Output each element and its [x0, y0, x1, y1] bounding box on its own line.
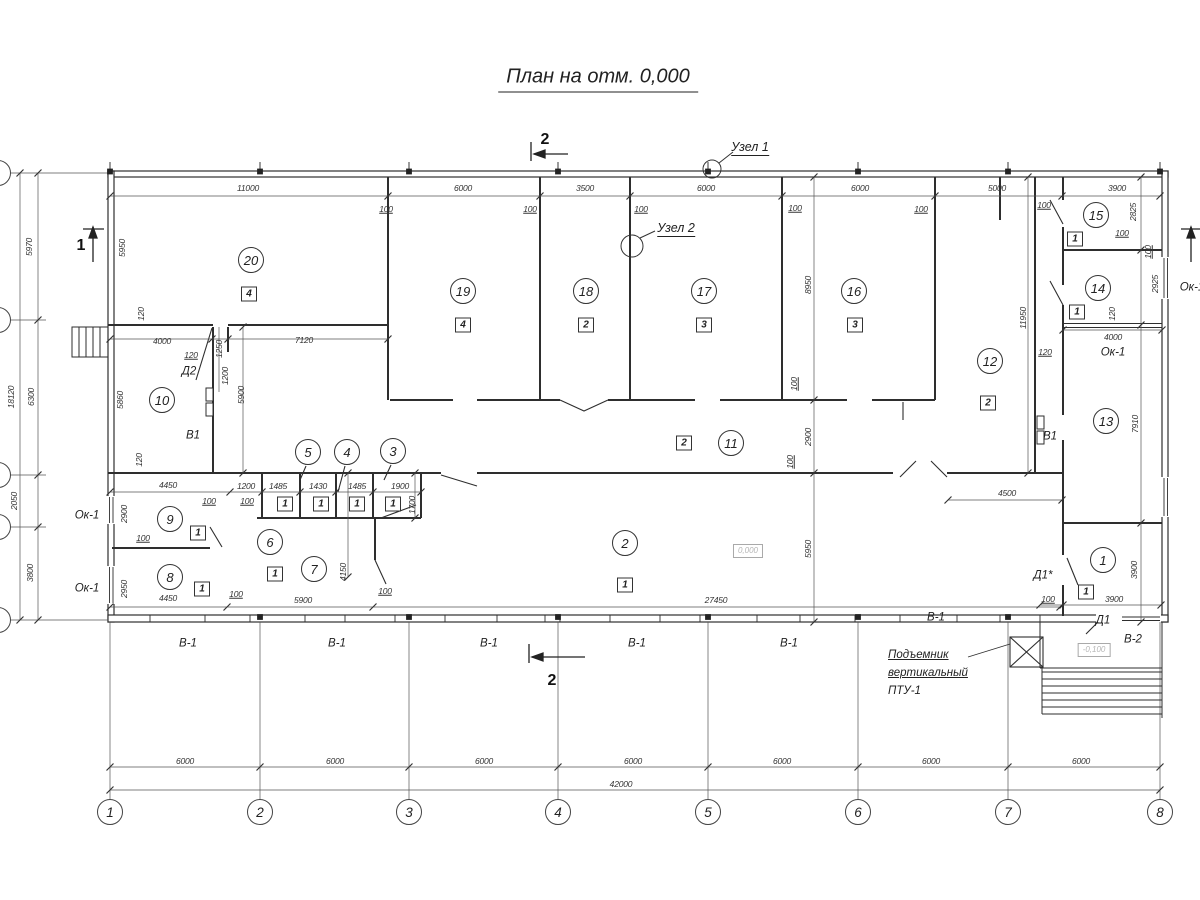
- lift-note-line1: Подъемник: [888, 646, 968, 664]
- plan-label: Ок-1: [75, 510, 100, 522]
- dimension-label: 4000: [1104, 333, 1122, 342]
- room-number-bubble-19: 19: [450, 278, 476, 304]
- dimension-label: 120: [1108, 307, 1117, 321]
- dimension-label: 100: [1041, 595, 1055, 604]
- axis-bubble-3: 3: [396, 799, 422, 825]
- dimension-label: 1485: [269, 482, 287, 491]
- dimension-label: 100: [229, 590, 243, 599]
- dimension-label: 100: [1144, 245, 1153, 259]
- dimension-label: 6000: [475, 757, 493, 766]
- dimension-label: 6000: [176, 757, 194, 766]
- dimension-label: 3500: [576, 184, 594, 193]
- lift-note-line3: ПТУ-1: [888, 682, 968, 700]
- dimension-label: 6000: [624, 757, 642, 766]
- dimension-label: 18120: [7, 386, 16, 409]
- dimension-label: 6000: [851, 184, 869, 193]
- dimension-label: 100: [523, 205, 537, 214]
- floor-plan-sheet: План на отм. 0,000 Узел 1 Узел 2 2 2 1 П…: [0, 0, 1200, 900]
- dimension-label: 4000: [153, 337, 171, 346]
- lift-symbol: [968, 637, 1043, 667]
- dimension-label: 100: [1115, 229, 1129, 238]
- dimension-label: 100: [136, 534, 150, 543]
- dimension-label: 3900: [1108, 184, 1126, 193]
- dimension-label: 5950: [804, 540, 813, 558]
- section-marks: [83, 142, 1200, 663]
- category-box: 1: [267, 567, 283, 582]
- section-mark-2-top: 2: [541, 131, 550, 149]
- dimension-label: 8950: [804, 276, 813, 294]
- room-number-bubble-2: 2: [612, 530, 638, 556]
- dimension-label: 1430: [309, 482, 327, 491]
- category-box: 1: [277, 497, 293, 512]
- dimension-label: 2825: [1129, 203, 1138, 221]
- elevation-mark: 0,000: [733, 544, 763, 558]
- dimension-label: 3900: [1105, 595, 1123, 604]
- dimension-ticks: [17, 170, 1166, 794]
- dimension-label: 100: [202, 497, 216, 506]
- dimension-label: 6000: [922, 757, 940, 766]
- plan-label: В1: [1043, 431, 1057, 443]
- dimension-label: 100: [786, 455, 795, 469]
- plan-label: Д1*: [1034, 570, 1053, 582]
- axis-bubble-7: 7: [995, 799, 1021, 825]
- category-box: 2: [578, 318, 594, 333]
- category-box: 3: [696, 318, 712, 333]
- dimension-label: 120: [137, 307, 146, 321]
- dimension-label: 3900: [1130, 561, 1139, 579]
- room-number-bubble-3: 3: [380, 438, 406, 464]
- dimension-label: 100: [634, 205, 648, 214]
- category-box: 4: [455, 318, 471, 333]
- plan-label: Д2: [182, 366, 197, 378]
- room-number-bubble-11: 11: [718, 430, 744, 456]
- dimension-label: 120: [135, 453, 144, 467]
- room-number-bubble-8: 8: [157, 564, 183, 590]
- room-number-bubble-17: 17: [691, 278, 717, 304]
- dimension-label: 42000: [610, 780, 633, 789]
- axis-bubble-1: 1: [97, 799, 123, 825]
- dimension-label: 6000: [1072, 757, 1090, 766]
- room-number-bubble-6: 6: [257, 529, 283, 555]
- room-number-bubble-1: 1: [1090, 547, 1116, 573]
- dimension-lines: [8, 173, 1162, 799]
- note-leader-line: [968, 644, 1010, 657]
- plan-label: В-1: [328, 638, 346, 650]
- entrance-stairs-left: [72, 327, 108, 357]
- dimension-label: 2900: [804, 428, 813, 446]
- dimension-label: 4450: [159, 594, 177, 603]
- category-box: 1: [313, 497, 329, 512]
- dimension-label: 100: [378, 587, 392, 596]
- lift-note: Подъемник вертикальный ПТУ-1: [888, 646, 968, 700]
- dimension-label: 1700: [408, 496, 417, 514]
- dimension-label: 1200: [237, 482, 255, 491]
- dimension-label: 100: [914, 205, 928, 214]
- node-1-label: Узел 1: [731, 140, 769, 156]
- room-number-bubble-18: 18: [573, 278, 599, 304]
- category-box: 1: [385, 497, 401, 512]
- plan-label: В-2: [1124, 634, 1142, 646]
- dimension-label: 1250: [215, 340, 224, 358]
- dimension-label: 2925: [1151, 275, 1160, 293]
- room-number-bubble-20: 20: [238, 247, 264, 273]
- room-number-bubble-12: 12: [977, 348, 1003, 374]
- dimension-label: 5950: [118, 239, 127, 257]
- dimension-label: 6000: [697, 184, 715, 193]
- category-box: 1: [1067, 232, 1083, 247]
- dimension-label: 100: [790, 377, 799, 391]
- plan-label: Ок-1: [75, 583, 100, 595]
- dimension-label: 4500: [998, 489, 1016, 498]
- category-box: 1: [190, 526, 206, 541]
- dimension-label: 1485: [348, 482, 366, 491]
- vent-shafts: [206, 388, 1044, 444]
- lift-note-line2: вертикальный: [888, 664, 968, 682]
- dimension-label: 120: [1038, 348, 1052, 357]
- plan-label: В-1: [927, 612, 945, 624]
- dimension-label: 4150: [339, 563, 348, 581]
- node-2-label: Узел 2: [657, 221, 695, 237]
- category-box: 1: [194, 582, 210, 597]
- axis-bubble-6: 6: [845, 799, 871, 825]
- category-box: 2: [676, 436, 692, 451]
- plan-label: Д1: [1096, 615, 1111, 627]
- dimension-label: 2950: [120, 580, 129, 598]
- dimension-label: 11950: [1019, 307, 1028, 329]
- dimension-label: 5860: [116, 391, 125, 409]
- room-number-bubble-4: 4: [334, 439, 360, 465]
- dimension-label: 120: [184, 351, 198, 360]
- category-box: 3: [847, 318, 863, 333]
- section-mark-2-bottom: 2: [548, 672, 557, 690]
- dimension-label: 2050: [10, 492, 19, 510]
- dimension-label: 2900: [120, 505, 129, 523]
- dimension-label: 1200: [221, 367, 230, 385]
- plan-label: В1: [186, 430, 200, 442]
- dimension-label: 6000: [773, 757, 791, 766]
- room-number-bubble-14: 14: [1085, 275, 1111, 301]
- category-box: 2: [980, 396, 996, 411]
- room-number-bubble-15: 15: [1083, 202, 1109, 228]
- dimension-label: 5000: [988, 184, 1006, 193]
- dimension-label: 100: [788, 204, 802, 213]
- dimension-label: 3800: [26, 564, 35, 582]
- plan-label: Ок-1: [1180, 282, 1200, 294]
- dimension-label: 27450: [705, 596, 728, 605]
- room-number-bubble-16: 16: [841, 278, 867, 304]
- dimension-label: 7910: [1131, 415, 1140, 433]
- plan-label: Ок-1: [1101, 347, 1126, 359]
- elevation-mark: -0,100: [1078, 643, 1111, 657]
- room-number-bubble-10: 10: [149, 387, 175, 413]
- plan-label: В-1: [780, 638, 798, 650]
- dimension-label: 7120: [295, 336, 313, 345]
- drawing-title: План на отм. 0,000: [498, 66, 698, 93]
- dimension-label: 5900: [294, 596, 312, 605]
- category-box: 1: [617, 578, 633, 593]
- axis-bubble-4: 4: [545, 799, 571, 825]
- node-2-circle: [621, 235, 643, 257]
- section-mark-1-left: 1: [77, 237, 86, 255]
- door-leaves: [196, 200, 1098, 634]
- axis-bubble-5: 5: [695, 799, 721, 825]
- room-number-bubble-5: 5: [295, 439, 321, 465]
- category-box: 1: [1069, 305, 1085, 320]
- category-box: 1: [349, 497, 365, 512]
- dimension-label: 1900: [391, 482, 409, 491]
- axis-bubble-8: 8: [1147, 799, 1173, 825]
- room-number-bubble-9: 9: [157, 506, 183, 532]
- dimension-label: 100: [379, 205, 393, 214]
- dimension-label: 5900: [237, 386, 246, 404]
- axis-bubble-2: 2: [247, 799, 273, 825]
- entrance-stairs-right: [1040, 622, 1162, 718]
- category-box: 4: [241, 287, 257, 302]
- room-number-bubble-13: 13: [1093, 408, 1119, 434]
- dimension-label: 6000: [326, 757, 344, 766]
- plan-label: В-1: [480, 638, 498, 650]
- plan-label: В-1: [179, 638, 197, 650]
- dimension-label: 11000: [237, 184, 259, 193]
- category-box: 1: [1078, 585, 1094, 600]
- dimension-label: 6300: [27, 388, 36, 406]
- dimension-label: 6000: [454, 184, 472, 193]
- dimension-label: 100: [1037, 201, 1051, 210]
- plan-label: В-1: [628, 638, 646, 650]
- dimension-label: 5970: [25, 238, 34, 256]
- room-number-bubble-7: 7: [301, 556, 327, 582]
- dimension-label: 4450: [159, 481, 177, 490]
- dimension-label: 100: [240, 497, 254, 506]
